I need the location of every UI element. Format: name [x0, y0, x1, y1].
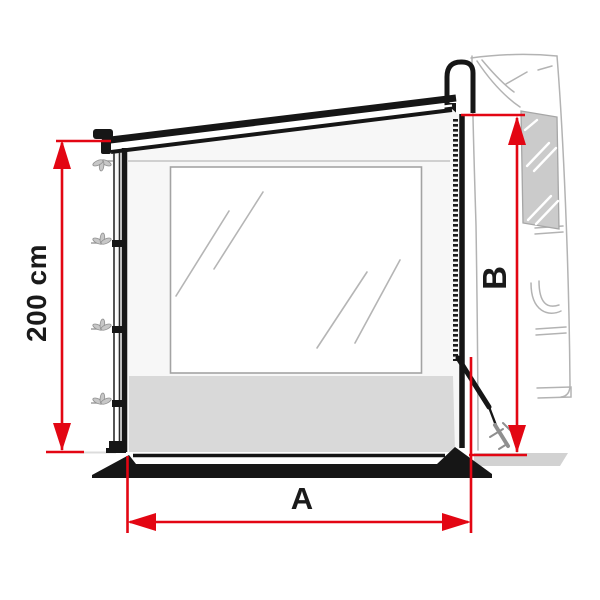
diagram-canvas: 200 cm B A [0, 0, 600, 600]
hook-clip-icon [92, 158, 113, 171]
hook-clip-icon [91, 319, 112, 332]
hook-clip-icon [91, 233, 112, 246]
vehicle-bumper-bracket [537, 387, 571, 398]
vehicle-door-handle-curve [531, 283, 561, 313]
pole-foot-plate [106, 448, 126, 453]
side-panel [92, 98, 492, 478]
vehicle-window [521, 111, 559, 229]
vehicle-roof-edge [471, 54, 557, 58]
pole-joint [112, 240, 122, 247]
rear-height-dimension-label: B [478, 248, 512, 308]
hook-clip-icon [91, 393, 112, 406]
pole-hooks [91, 158, 113, 405]
panel-window [171, 167, 422, 373]
vehicle-detail-line [506, 72, 527, 84]
dimension-height-200cm [46, 140, 111, 452]
vehicle-door-handle-curve [539, 281, 559, 306]
tension-strap [458, 358, 511, 449]
height-dimension-label: 200 cm [23, 213, 53, 373]
vehicle-awning-rail-curve [477, 61, 520, 107]
vehicle-detail-line [536, 327, 566, 335]
pole-joint [112, 400, 122, 407]
ground-peg [490, 423, 511, 449]
panel-skirt-band [129, 376, 455, 452]
width-dimension-label: A [272, 483, 332, 515]
pole-joint [112, 326, 122, 333]
pole-foot [109, 441, 123, 448]
vehicle-detail-line [538, 66, 552, 70]
